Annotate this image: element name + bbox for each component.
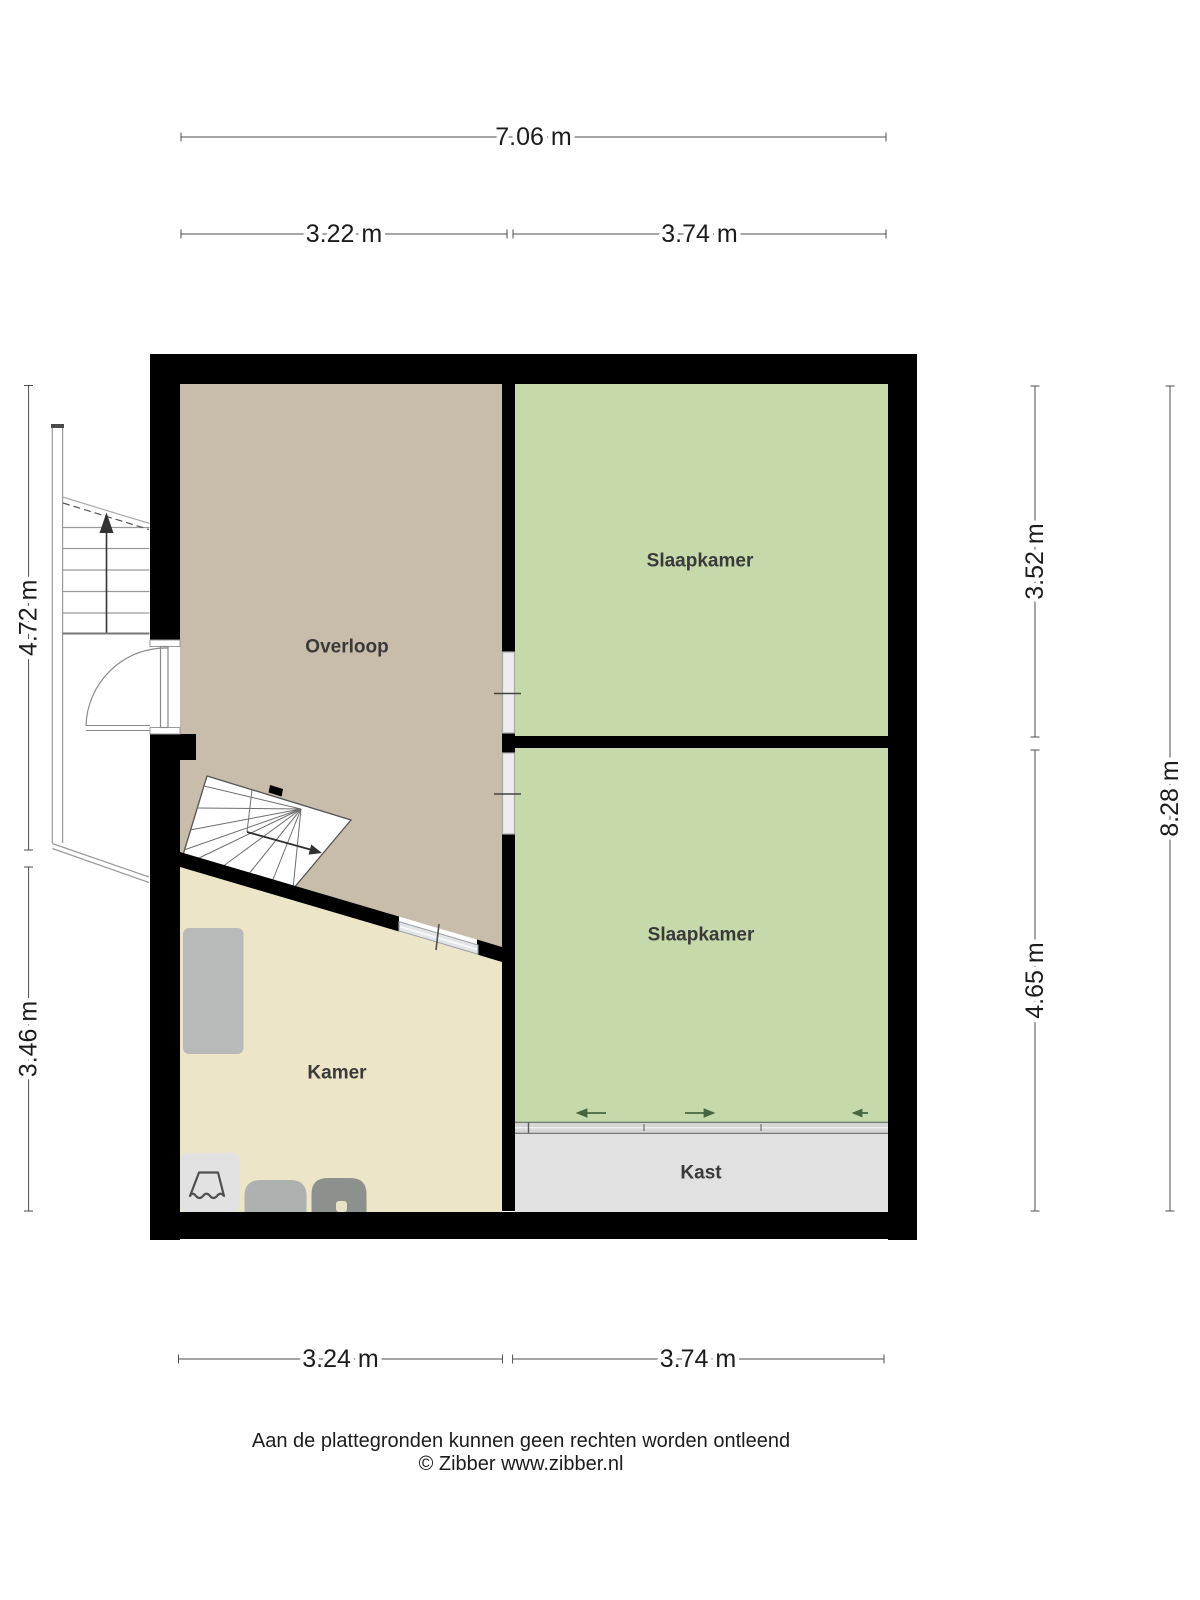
svg-text:Slaapkamer: Slaapkamer xyxy=(648,925,755,946)
svg-text:© Zibber www.zibber.nl: © Zibber www.zibber.nl xyxy=(419,1453,624,1475)
svg-text:Kamer: Kamer xyxy=(307,1063,367,1084)
svg-text:3.22 m: 3.22 m xyxy=(306,220,382,248)
svg-text:Slaapkamer: Slaapkamer xyxy=(647,551,754,572)
svg-text:Kast: Kast xyxy=(680,1163,722,1184)
svg-text:7.06 m: 7.06 m xyxy=(495,123,571,151)
svg-text:3.74 m: 3.74 m xyxy=(661,220,737,248)
svg-text:4.65 m: 4.65 m xyxy=(1021,942,1049,1018)
svg-text:4.72 m: 4.72 m xyxy=(15,580,43,656)
svg-text:3.24 m: 3.24 m xyxy=(302,1345,378,1373)
svg-text:8.28 m: 8.28 m xyxy=(1156,760,1184,836)
svg-text:Aan de plattegronden kunnen ge: Aan de plattegronden kunnen geen rechten… xyxy=(252,1430,790,1452)
svg-text:3.74 m: 3.74 m xyxy=(660,1345,736,1373)
svg-text:Overloop: Overloop xyxy=(305,637,388,658)
svg-text:3.46 m: 3.46 m xyxy=(15,1001,43,1077)
svg-text:3.52 m: 3.52 m xyxy=(1021,523,1049,599)
